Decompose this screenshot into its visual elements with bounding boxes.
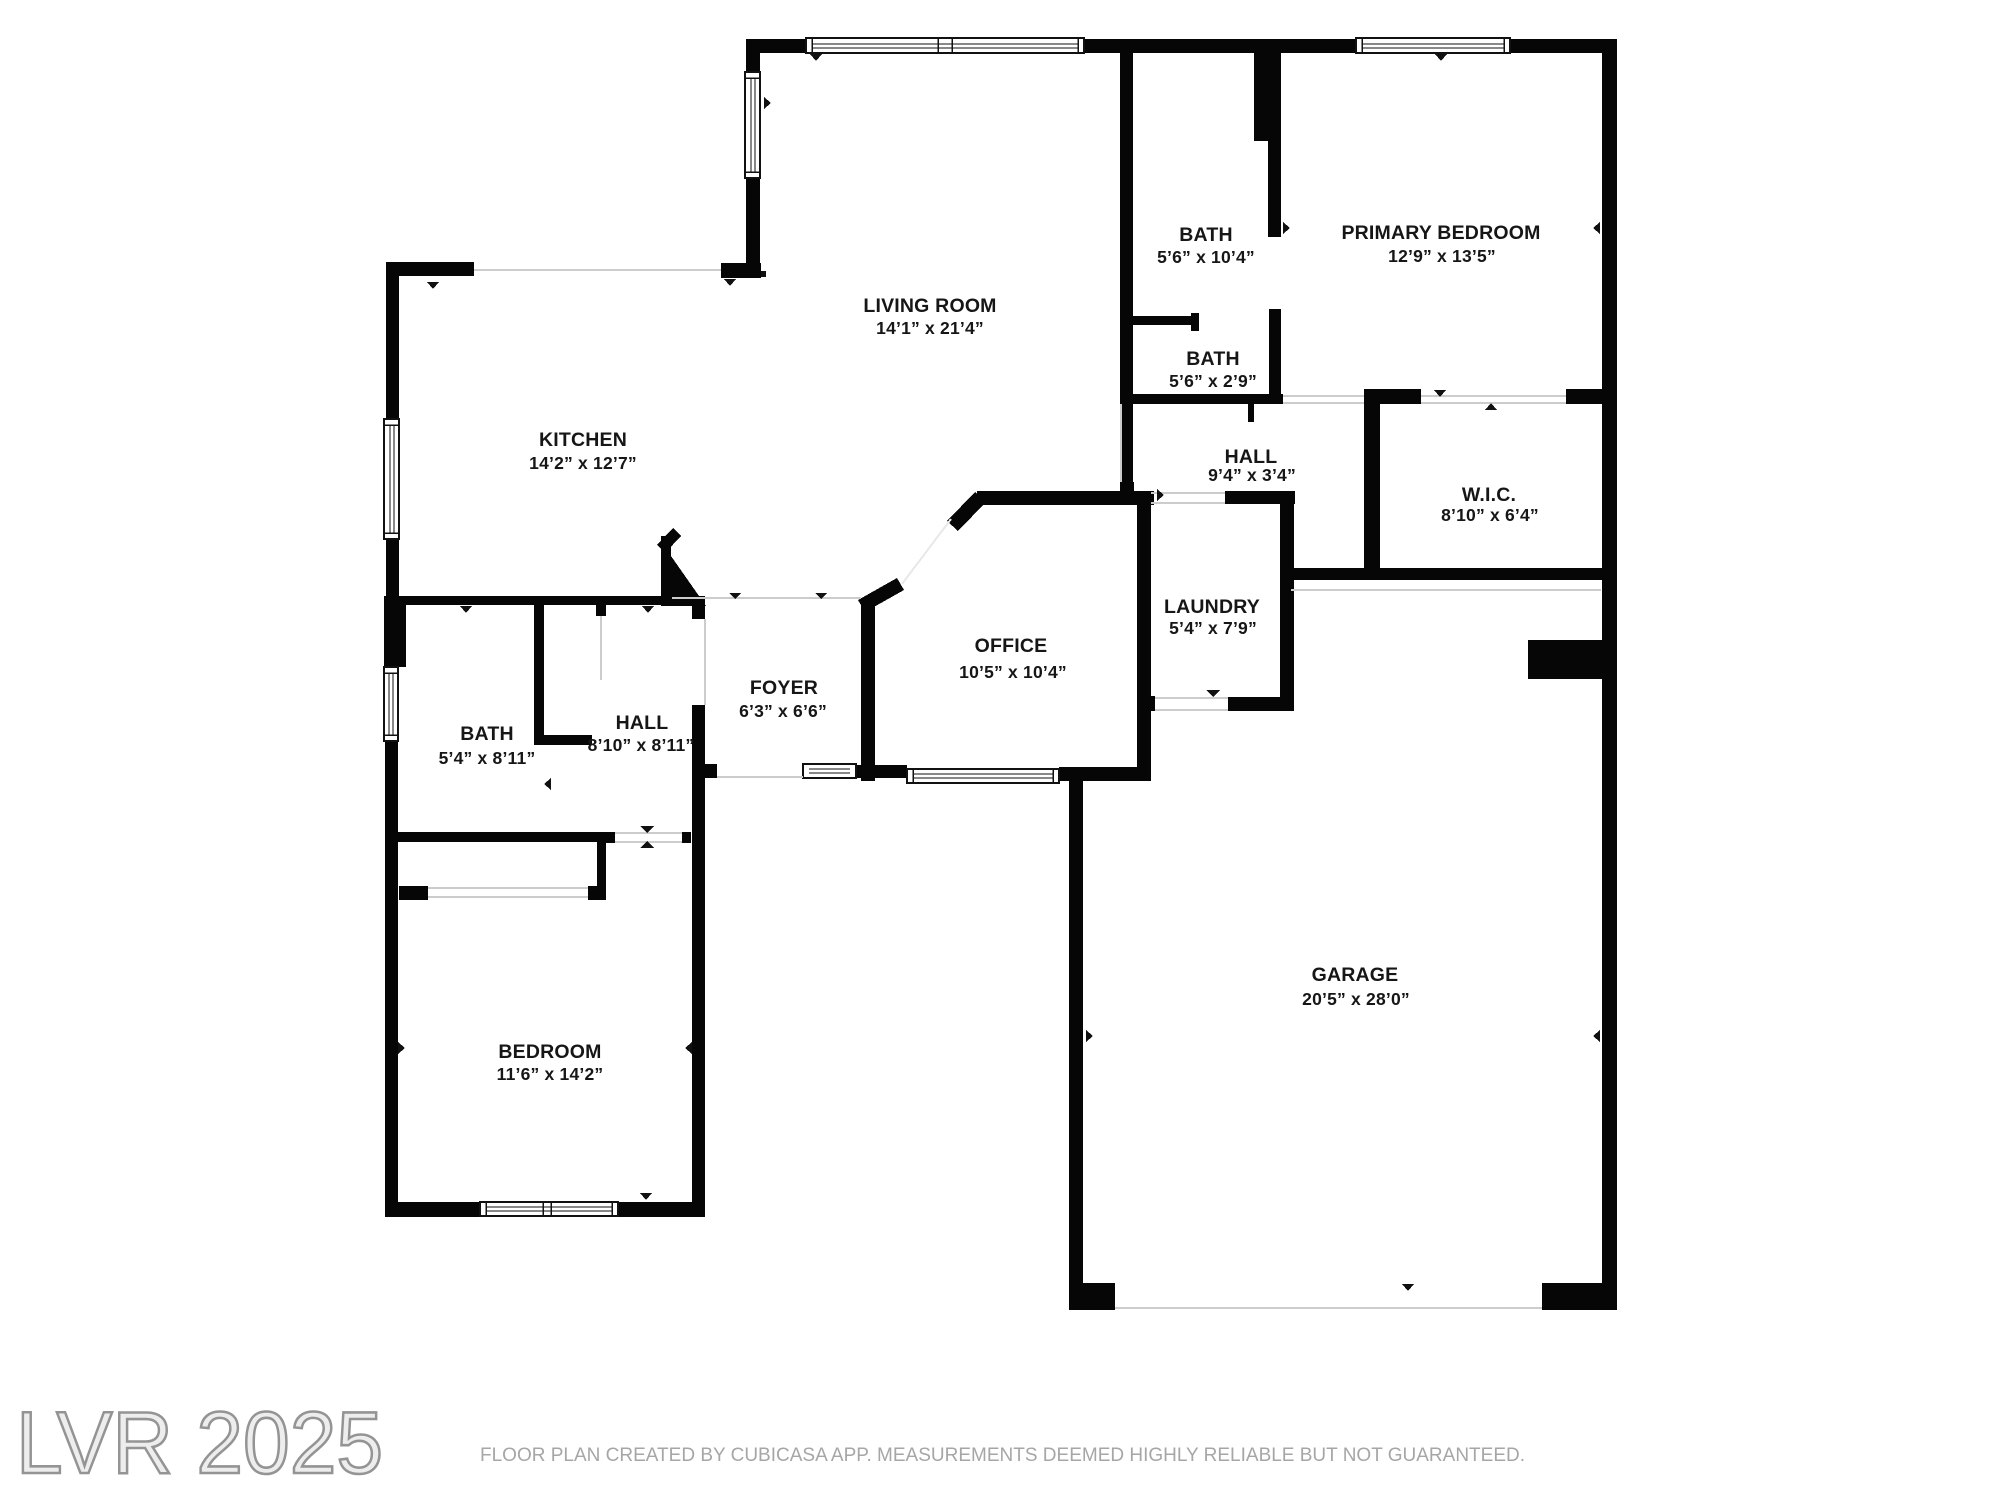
svg-text:LVR 2025: LVR 2025 [16,1394,383,1492]
svg-text:BATH: BATH [460,723,514,745]
svg-text:KITCHEN: KITCHEN [539,429,627,451]
svg-text:14’2” x 12’7”: 14’2” x 12’7” [529,453,637,473]
svg-text:FOYER: FOYER [750,677,818,699]
svg-text:5’6” x 10’4”: 5’6” x 10’4” [1157,247,1255,267]
svg-text:12’9” x 13’5”: 12’9” x 13’5” [1388,246,1496,266]
svg-text:5’4” x 8’11”: 5’4” x 8’11” [439,748,536,768]
svg-text:LIVING ROOM: LIVING ROOM [863,295,996,317]
svg-text:BEDROOM: BEDROOM [498,1041,601,1063]
svg-text:GARAGE: GARAGE [1312,964,1399,986]
svg-text:OFFICE: OFFICE [975,635,1048,657]
svg-text:8’10” x 8’11”: 8’10” x 8’11” [588,735,695,755]
svg-text:6’3” x 6’6”: 6’3” x 6’6” [739,701,827,721]
svg-text:BATH: BATH [1186,348,1240,370]
svg-text:14’1” x 21’4”: 14’1” x 21’4” [876,318,984,338]
svg-text:LAUNDRY: LAUNDRY [1164,596,1260,618]
svg-text:HALL: HALL [616,712,669,734]
svg-text:FLOOR PLAN CREATED BY CUBICASA: FLOOR PLAN CREATED BY CUBICASA APP. MEAS… [480,1445,1525,1466]
svg-text:10’5” x 10’4”: 10’5” x 10’4” [959,662,1067,682]
svg-text:11’6” x 14’2”: 11’6” x 14’2” [497,1064,604,1084]
svg-text:9’4” x 3’4”: 9’4” x 3’4” [1208,465,1296,485]
svg-text:8’10” x 6’4”: 8’10” x 6’4” [1441,505,1539,525]
svg-text:BATH: BATH [1179,224,1233,246]
svg-text:5’4” x 7’9”: 5’4” x 7’9” [1169,618,1257,638]
svg-text:20’5” x 28’0”: 20’5” x 28’0” [1302,989,1410,1009]
svg-text:PRIMARY BEDROOM: PRIMARY BEDROOM [1341,222,1540,244]
svg-text:W.I.C.: W.I.C. [1462,484,1516,506]
svg-text:5’6” x 2’9”: 5’6” x 2’9” [1169,371,1257,391]
